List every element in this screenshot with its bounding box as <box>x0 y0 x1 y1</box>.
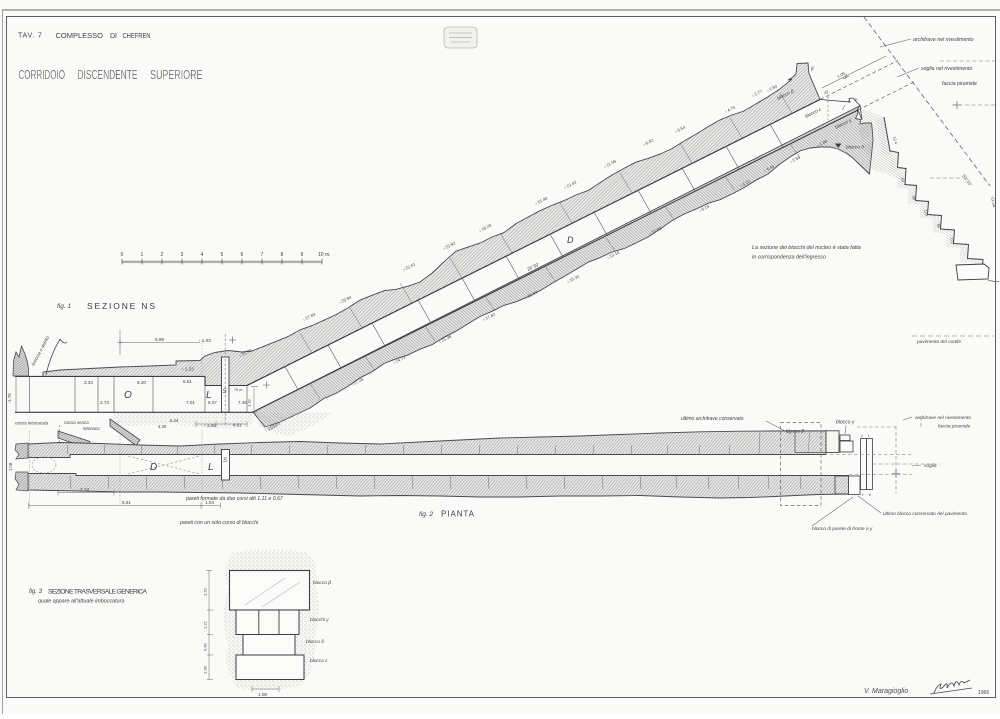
svg-text:3.34: 3.34 <box>84 380 93 385</box>
svg-text:ultimo architrave conservato: ultimo architrave conservato <box>681 416 744 422</box>
svg-text:‹ 1.23: ‹ 1.23 <box>182 367 194 372</box>
svg-text:6.20: 6.20 <box>137 380 146 385</box>
svg-text:1.32: 1.32 <box>247 398 252 407</box>
svg-text:‹ 1.03: ‹ 1.03 <box>199 338 211 343</box>
svg-text:4.51: 4.51 <box>233 423 242 428</box>
svg-text:4: 4 <box>201 252 204 258</box>
svg-text:O: O <box>124 390 132 401</box>
svg-text:in corrispondenza dell'ingress: in corrispondenza dell'ingresso <box>752 255 826 261</box>
svg-text:7.01: 7.01 <box>186 400 195 405</box>
svg-text:fig. 3: fig. 3 <box>29 589 43 595</box>
svg-text:pareti con un solo corso di bl: pareti con un solo corso di blocchi <box>179 520 259 526</box>
svg-text:architrave nel rivestimento: architrave nel rivestimento <box>915 415 971 421</box>
svg-text:blocco δ: blocco δ <box>306 639 324 645</box>
svg-text:COMPLESSO: COMPLESSO <box>56 33 104 40</box>
svg-text:5.99: 5.99 <box>155 337 164 342</box>
svg-text:TAV. 7: TAV. 7 <box>18 33 43 40</box>
svg-text:blocco δ: blocco δ <box>846 145 864 151</box>
svg-text:CHEFREN: CHEFREN <box>123 33 151 40</box>
svg-text:architrave nel rivestimento: architrave nel rivestimento <box>913 37 974 43</box>
svg-text:S: S <box>223 458 227 464</box>
svg-text:D: D <box>567 235 574 245</box>
svg-text:0.90: 0.90 <box>203 642 208 651</box>
svg-text:quale appare all'attuale imboc: quale appare all'attuale imboccatura <box>38 599 124 605</box>
svg-text:fig. 1: fig. 1 <box>57 303 71 310</box>
svg-text:faccia piramide: faccia piramide <box>942 81 977 87</box>
svg-text:e: e <box>869 493 871 497</box>
svg-text:blocco ε: blocco ε <box>310 658 328 664</box>
svg-text:E: E <box>855 97 858 102</box>
svg-text:pavimento del cortile: pavimento del cortile <box>916 339 961 345</box>
svg-text:S: S <box>223 389 227 395</box>
svg-text:fig. 2: fig. 2 <box>419 511 433 518</box>
svg-text:blocchi γ: blocchi γ <box>310 617 329 623</box>
svg-text:blocco β: blocco β <box>313 580 331 586</box>
svg-text:faccia piramide: faccia piramide <box>938 424 971 430</box>
svg-text:roccia senza: roccia senza <box>64 420 89 425</box>
svg-text:5.34: 5.34 <box>170 418 179 423</box>
svg-text:8.61: 8.61 <box>122 500 131 505</box>
svg-text:roccia intonacata: roccia intonacata <box>15 421 49 426</box>
svg-text:L: L <box>208 462 214 473</box>
svg-text:DI: DI <box>110 33 117 40</box>
svg-text:V. Maragioglio: V. Maragioglio <box>864 688 908 695</box>
svg-text:1.08: 1.08 <box>258 692 267 697</box>
svg-text:1.38: 1.38 <box>203 665 208 674</box>
svg-text:7: 7 <box>261 252 264 258</box>
svg-text:8.61: 8.61 <box>183 379 192 384</box>
svg-text:1.22: 1.22 <box>203 620 208 629</box>
svg-text:5: 5 <box>221 252 224 258</box>
svg-text:SUPERIORE: SUPERIORE <box>150 68 202 83</box>
svg-text:β: β <box>810 66 814 71</box>
svg-text:9: 9 <box>301 252 304 258</box>
svg-text:1: 1 <box>141 252 144 258</box>
svg-text:L: L <box>206 390 212 401</box>
svg-text:6: 6 <box>241 252 244 258</box>
svg-text:4.30: 4.30 <box>158 424 167 429</box>
svg-text:0: 0 <box>121 252 124 258</box>
svg-text:intonaco: intonaco <box>83 426 100 431</box>
svg-text:1966: 1966 <box>978 690 989 696</box>
svg-text:SEZIONE NS: SEZIONE NS <box>87 301 155 311</box>
svg-text:blocco di parete di fronte a γ: blocco di parete di fronte a γ <box>812 526 873 532</box>
svg-text:8: 8 <box>281 252 284 258</box>
svg-text:DISCENDENTE: DISCENDENTE <box>78 68 138 83</box>
svg-text:pareti formate da due corsi al: pareti formate da due corsi alti 1.11 e … <box>185 496 284 502</box>
svg-text:ultimo blocco conservato del p: ultimo blocco conservato del pavimento <box>883 511 967 517</box>
svg-text:10 m.: 10 m. <box>318 252 331 258</box>
svg-text:soglia nel rivestimento: soglia nel rivestimento <box>921 66 972 72</box>
svg-text:blocco γ: blocco γ <box>836 420 855 426</box>
svg-text:1.20: 1.20 <box>203 587 208 596</box>
svg-text:D: D <box>150 462 157 473</box>
svg-text:2: 2 <box>161 252 164 258</box>
svg-text:SEZIONE TRASVERSALE GENERICA: SEZIONE TRASVERSALE GENERICA <box>48 589 147 596</box>
svg-text:PIANTA: PIANTA <box>441 510 475 519</box>
svg-text:CORRIDOIO: CORRIDOIO <box>19 68 66 83</box>
svg-text:70 m.: 70 m. <box>234 388 244 392</box>
svg-text:2.74: 2.74 <box>100 400 109 405</box>
svg-text:1.08: 1.08 <box>8 462 13 471</box>
svg-text:2.74: 2.74 <box>80 487 89 492</box>
svg-text:blocco β: blocco β <box>786 429 804 435</box>
svg-text:3: 3 <box>181 252 184 258</box>
svg-text:z: z <box>860 434 863 438</box>
svg-text:La sezione dei blocchi del nuc: La sezione dei blocchi del nucleo è stat… <box>752 245 861 251</box>
svg-text:-1.78: -1.78 <box>7 393 12 403</box>
